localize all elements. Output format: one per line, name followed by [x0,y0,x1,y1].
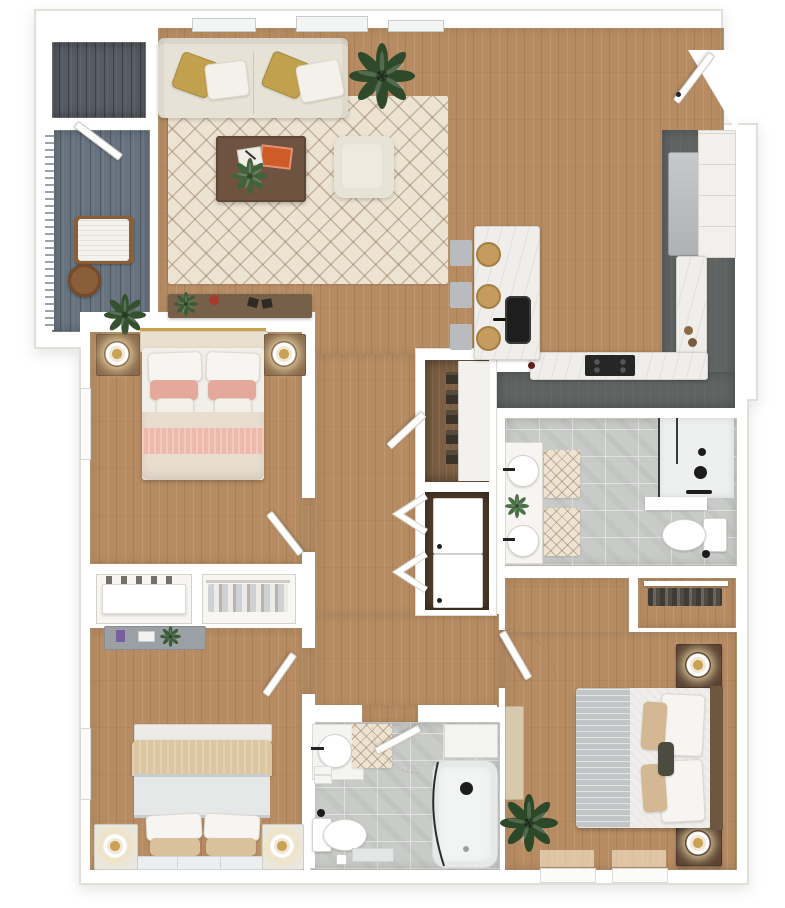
toilet1-tank [703,518,727,552]
master-headboard [710,686,723,830]
accent-chair-cushion [340,142,384,190]
tub-ledge [444,724,498,758]
tub-shower-head [460,782,473,795]
bedroom1-white-pillow-2 [205,351,260,383]
stool-back-1 [450,240,472,266]
bathroom2-bathmat [352,848,394,862]
shower-head [694,466,707,479]
master-lamp-top [685,652,711,678]
tub-drain [463,846,469,852]
stool-back-2 [450,282,472,308]
living-room-rug [168,96,448,284]
bedroom1-white-pillow-1 [147,351,202,383]
toilet1-flush-dot [702,550,710,558]
stool-seat-1 [476,242,501,267]
master-bed-gray-throw [576,688,630,828]
bedroom1-lamp-left [104,341,130,367]
coffee-table-plant [232,158,268,194]
living-floor-plant [349,43,415,109]
tub-glass-door [424,758,454,870]
window-frame-3 [388,20,444,32]
lounge-chair-cushion [78,219,129,261]
bathroom1-mat-1 [544,450,580,498]
bedroom2-beige-pillow-2 [206,838,256,856]
bathroom2-towel-2 [314,775,332,784]
entry-door-handle [676,92,681,97]
bedroom1-lamp-right [271,341,297,367]
bathroom2-drain-dot [317,809,325,817]
balcony-railing [43,130,54,330]
stool-seat-3 [476,326,501,351]
sofa-white-pillow-1 [204,60,250,101]
bathroom1-sink-1 [507,455,539,487]
closet2-rod [206,580,290,583]
cooktop [585,355,635,376]
console-item-2 [261,298,272,309]
bathroom1-mat-2 [544,508,580,556]
counter-bowl-2 [688,338,697,347]
bedroom1-window [80,388,91,460]
bathroom1-faucet-1 [503,468,515,471]
island-sink [505,296,531,344]
bathroom1-plant [505,494,529,518]
master-accent-pillow [658,742,674,776]
bathroom1-sink-2 [507,525,539,557]
shower-control-dot [698,448,706,456]
floor-plan [0,0,785,908]
toilet2-bowl [323,819,367,851]
pantry-door-panel [458,361,490,481]
shower-glass-line-2 [676,418,678,464]
toilet1-bowl [662,519,706,551]
master-closet-clothes [648,588,722,606]
bedroom2-lamp-right [269,833,295,859]
master-window-light-2 [612,850,666,867]
master-closet-shelf [644,581,728,586]
shower-bar [686,490,712,494]
bedroom1-pink-pillow-2 [208,380,256,400]
master-window-sill-1 [540,868,596,883]
bedroom1-pink-stripe [142,428,264,454]
master-bench [505,706,524,800]
shower-glass-line-1 [658,418,660,498]
hallway-floor-lower [315,614,499,707]
bedroom2-window [80,728,91,800]
master-plant [500,794,558,852]
bedroom2-dresser-tray [138,631,155,642]
toilet2-paper [336,854,347,865]
bedroom2-headboard [134,856,272,870]
console-plant [174,292,198,316]
bedroom2-beige-pillow-1 [150,838,200,856]
bathroom1-faucet-2 [503,538,515,541]
master-window-sill-2 [612,868,668,883]
island-faucet [493,318,506,321]
counter-bowl-1 [684,326,693,335]
washer-control-dot [437,544,442,549]
bedroom2-duvet [134,774,270,818]
wall-hall-bottom-right [418,705,497,722]
bathroom2-towel-1 [314,766,332,775]
storage-closet-floor [52,42,146,118]
console-red-flowers [209,295,219,305]
sofa-cushion-divider [253,52,254,114]
closet2-clothes [208,584,288,612]
master-window-light-1 [540,850,594,867]
wine-bottle [528,362,535,369]
laundry-bifold-doors [390,488,430,600]
bedroom2-beige-blanket [132,740,272,776]
wall-hall-bottom-left [302,705,362,722]
bedroom2-lamp-left [102,833,128,859]
closet1-shoes [106,576,180,584]
bedroom2-door-threshold [302,648,315,694]
window-frame-2 [296,16,368,32]
bathroom1-half-wall [645,497,707,510]
fridge [668,152,700,256]
bedroom2-dresser-item [116,630,125,642]
closet1-shelf [102,584,186,614]
wall-hallway-left-b [302,552,315,648]
bathroom2-door-threshold [362,705,418,722]
bathroom2-sink [318,734,352,768]
bedroom1-pink-pillow-1 [150,380,198,400]
bathroom2-faucet [311,747,324,750]
bedroom1-door-threshold [302,498,315,552]
bathroom1-shower-floor [658,418,734,498]
kitchen-cabinets-right [698,130,736,258]
master-lamp-bottom [685,830,711,856]
balcony-side-table [68,264,101,297]
bedroom2-dresser-plant [160,626,181,647]
stool-seat-2 [476,284,501,309]
window-frame-1 [192,18,256,32]
stool-back-3 [450,324,472,350]
dryer-control-dot [437,598,442,603]
